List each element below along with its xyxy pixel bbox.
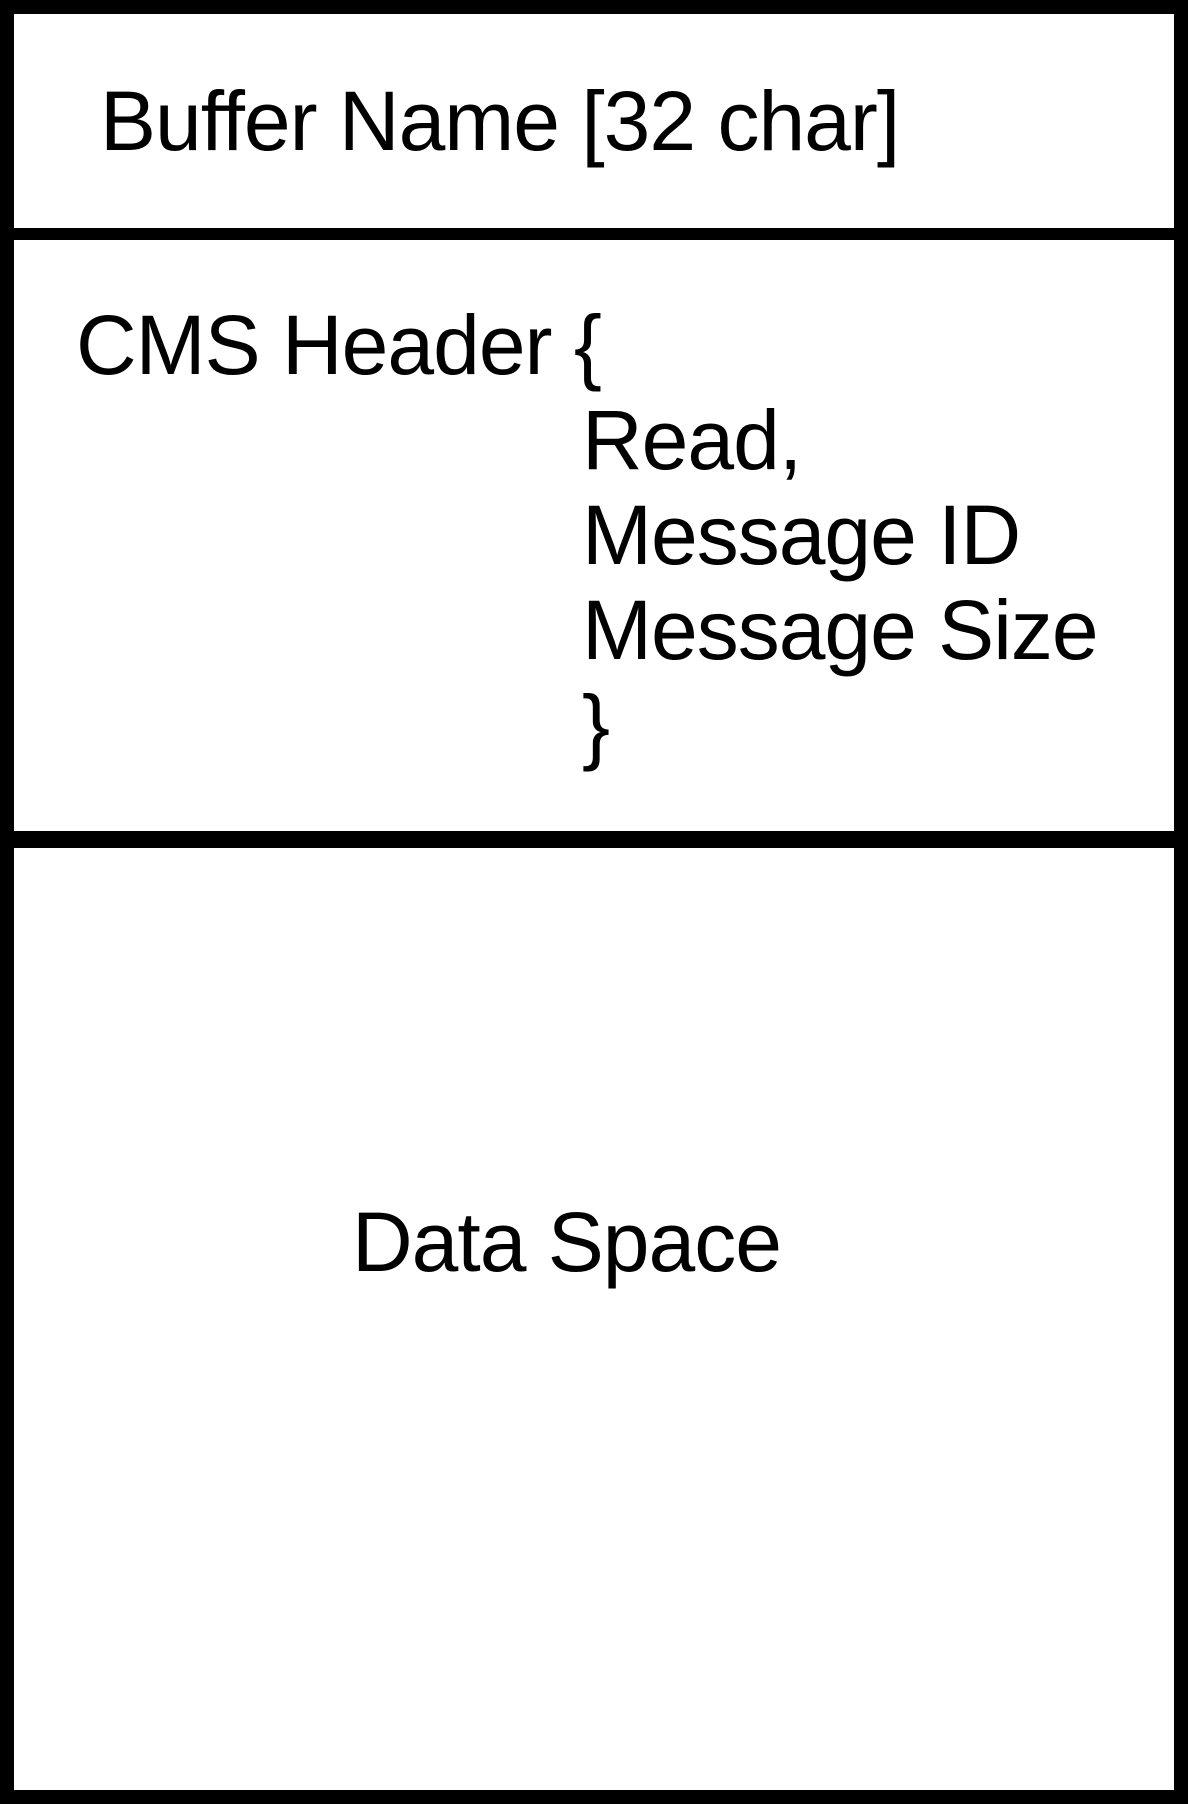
section-divider-1 [14, 228, 1174, 240]
section-divider-2 [14, 831, 1174, 848]
buffer-name-section: Buffer Name [32 char] [14, 14, 1174, 228]
cms-header-field-read: Read, [582, 393, 1174, 488]
cms-header-section: CMS Header { Read, Message ID Message Si… [14, 240, 1174, 831]
cms-buffer-diagram: Buffer Name [32 char] CMS Header { Read,… [0, 0, 1188, 1804]
data-space-label: Data Space [352, 1195, 781, 1289]
cms-header-field-message-id: Message ID [582, 488, 1174, 583]
cms-header-open-label: CMS Header { [76, 298, 1174, 393]
buffer-name-label: Buffer Name [32 char] [100, 79, 899, 163]
data-space-section: Data Space [14, 848, 1174, 1790]
cms-header-close-brace: } [582, 678, 1174, 773]
buffer-outer-box: Buffer Name [32 char] CMS Header { Read,… [0, 0, 1188, 1804]
cms-header-field-message-size: Message Size [582, 583, 1174, 678]
